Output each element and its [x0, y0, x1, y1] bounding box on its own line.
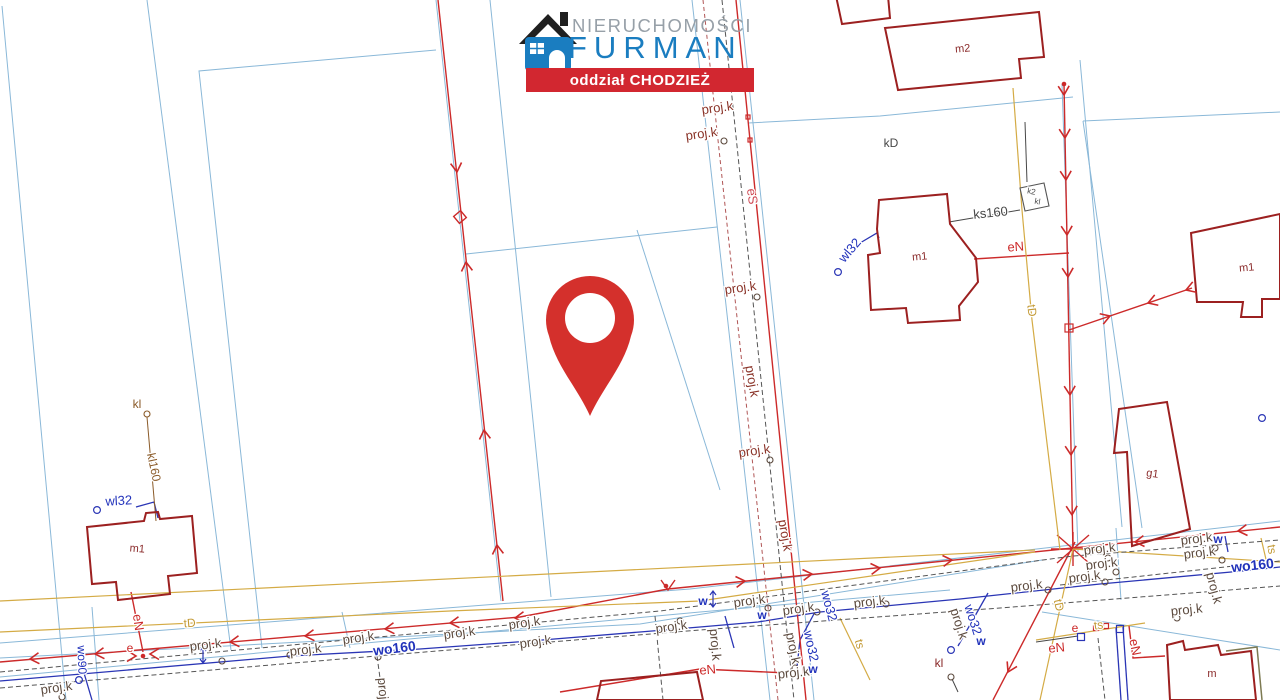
black-lines	[952, 679, 958, 692]
map-label: w	[807, 662, 818, 676]
water-point-icon	[1259, 415, 1266, 422]
parcel-lines	[436, 0, 501, 601]
map-label: ks160	[972, 203, 1008, 222]
map-label: wo90	[74, 644, 89, 674]
map-label: eN	[1126, 637, 1144, 656]
map-label: m	[1207, 668, 1216, 680]
water-point-icon	[948, 647, 955, 654]
projected-lines	[0, 586, 1280, 688]
survey-point-icon	[219, 658, 225, 664]
survey-point-icon	[59, 694, 65, 700]
power-lines	[438, 0, 503, 601]
building-m1-right	[1191, 214, 1280, 317]
map-label: wl32	[104, 492, 132, 508]
power-lines	[974, 253, 1069, 259]
map-label: wo32	[818, 588, 841, 623]
map-label: proj.k	[738, 441, 772, 460]
red-dot-icon	[1062, 82, 1067, 87]
map-label: m1	[129, 542, 145, 555]
power-lines	[560, 669, 788, 692]
map-label: proj.k	[724, 278, 758, 297]
map-label: kl	[133, 397, 142, 411]
map-label: wo160	[371, 637, 417, 658]
secondary-building	[1226, 647, 1262, 700]
map-label: w	[756, 608, 767, 622]
map-label: tD	[1024, 304, 1039, 318]
map-label: eN	[130, 613, 147, 632]
map-label: proj.k	[1183, 543, 1217, 562]
survey-point-icon	[948, 674, 954, 680]
map-label: proj.k	[1010, 576, 1044, 595]
water-lines	[1116, 628, 1121, 700]
parcel-lines	[199, 50, 436, 648]
parcel-lines	[2, 6, 66, 700]
building-m1-left	[87, 512, 197, 600]
map-label: kl160	[144, 452, 164, 483]
map-label: proj.k	[783, 631, 804, 666]
water-point-icon	[835, 269, 842, 276]
red-dot-icon	[141, 654, 146, 659]
survey-point-icon	[721, 138, 727, 144]
building-bottom-center	[597, 672, 703, 700]
survey-point-icon	[1113, 569, 1119, 575]
map-label: proj.k	[1068, 567, 1102, 586]
water-point-icon	[76, 677, 83, 684]
map-label: m1	[1239, 261, 1255, 274]
map-label: m1	[912, 250, 928, 263]
parcel-lines	[1083, 121, 1142, 528]
map-label: e	[127, 641, 134, 655]
logo-branch-banner: oddział CHODZIEŻ	[526, 68, 754, 92]
map-label: ts	[1264, 543, 1279, 555]
map-label: eN	[1007, 238, 1025, 254]
map-label: proj.k	[40, 678, 74, 697]
map-label: proj.k	[655, 617, 689, 636]
map-label: ts	[1093, 618, 1104, 633]
map-label: kD	[884, 136, 899, 150]
map-label: proj.k	[1170, 600, 1204, 618]
water-lines	[1123, 627, 1128, 700]
map-label: wl32	[835, 235, 864, 266]
map-label: proj.k	[375, 677, 393, 700]
survey-point-icon	[754, 294, 760, 300]
map-label: proj.k	[685, 124, 719, 143]
water-lines	[860, 233, 879, 243]
agency-logo: NIERUCHOMOŚCI FURMAN oddział CHODZIEŻ	[496, 2, 764, 96]
water-point-icon	[94, 507, 101, 514]
power-lines	[1064, 84, 1073, 552]
map-label: w	[975, 634, 986, 648]
gas-lines	[1036, 623, 1145, 640]
cadastral-map-canvas: proj.kproj.keSproj.kproj.kproj.kproj.kkD…	[0, 0, 1280, 700]
map-screenshot: proj.kproj.keSproj.kproj.kproj.kproj.kkD…	[0, 0, 1280, 700]
map-label: ts	[852, 638, 868, 651]
kl-point-icon	[144, 411, 150, 417]
map-label: proj.k	[775, 518, 795, 552]
map-label: e	[1072, 621, 1079, 635]
map-label: m2	[955, 42, 971, 55]
parcel-lines	[1062, 84, 1078, 552]
map-label: proj.k	[289, 640, 323, 659]
map-label: proj.k	[189, 635, 223, 654]
map-label: proj.k	[707, 628, 725, 661]
blue-node-icon	[1078, 634, 1085, 641]
location-pin-hole	[565, 293, 615, 343]
map-label: proj.k	[1203, 571, 1226, 606]
map-label: w	[1212, 532, 1223, 546]
water-lines	[725, 616, 734, 648]
power-lines	[1069, 288, 1192, 330]
black-lines	[1025, 122, 1027, 182]
map-label: proj.k	[519, 632, 553, 651]
parcel-lines	[1080, 60, 1122, 527]
map-label: eN	[699, 661, 717, 677]
map-label: proj.k	[782, 599, 816, 618]
logo-title-main: FURMAN	[568, 30, 743, 66]
map-label: proj.k	[853, 592, 887, 611]
projected-lines	[1098, 638, 1105, 700]
parcel-lines	[466, 227, 717, 254]
map-label: proj.k	[342, 628, 376, 647]
red-node-icon	[1104, 624, 1109, 629]
parcel-lines	[637, 230, 720, 490]
red-dot-icon	[664, 584, 669, 589]
parcel-lines	[748, 97, 1073, 123]
map-label: wo160	[1229, 555, 1274, 576]
map-label: proj.k	[777, 663, 811, 681]
map-label: tD	[1051, 598, 1067, 613]
map-label: proj.k	[443, 623, 477, 642]
gas-lines	[1013, 88, 1060, 550]
map-label: w	[697, 594, 708, 608]
water-lines	[84, 673, 92, 700]
parcel-lines	[1083, 112, 1280, 121]
map-label: eS	[744, 187, 761, 205]
parcel-lines	[147, 0, 231, 650]
map-label: g1	[1146, 467, 1160, 481]
map-label: kl	[935, 656, 944, 670]
map-label: proj.k	[701, 98, 735, 117]
building-top	[836, 0, 890, 24]
map-label: eN	[1048, 639, 1066, 655]
map-label: tD	[183, 615, 197, 630]
